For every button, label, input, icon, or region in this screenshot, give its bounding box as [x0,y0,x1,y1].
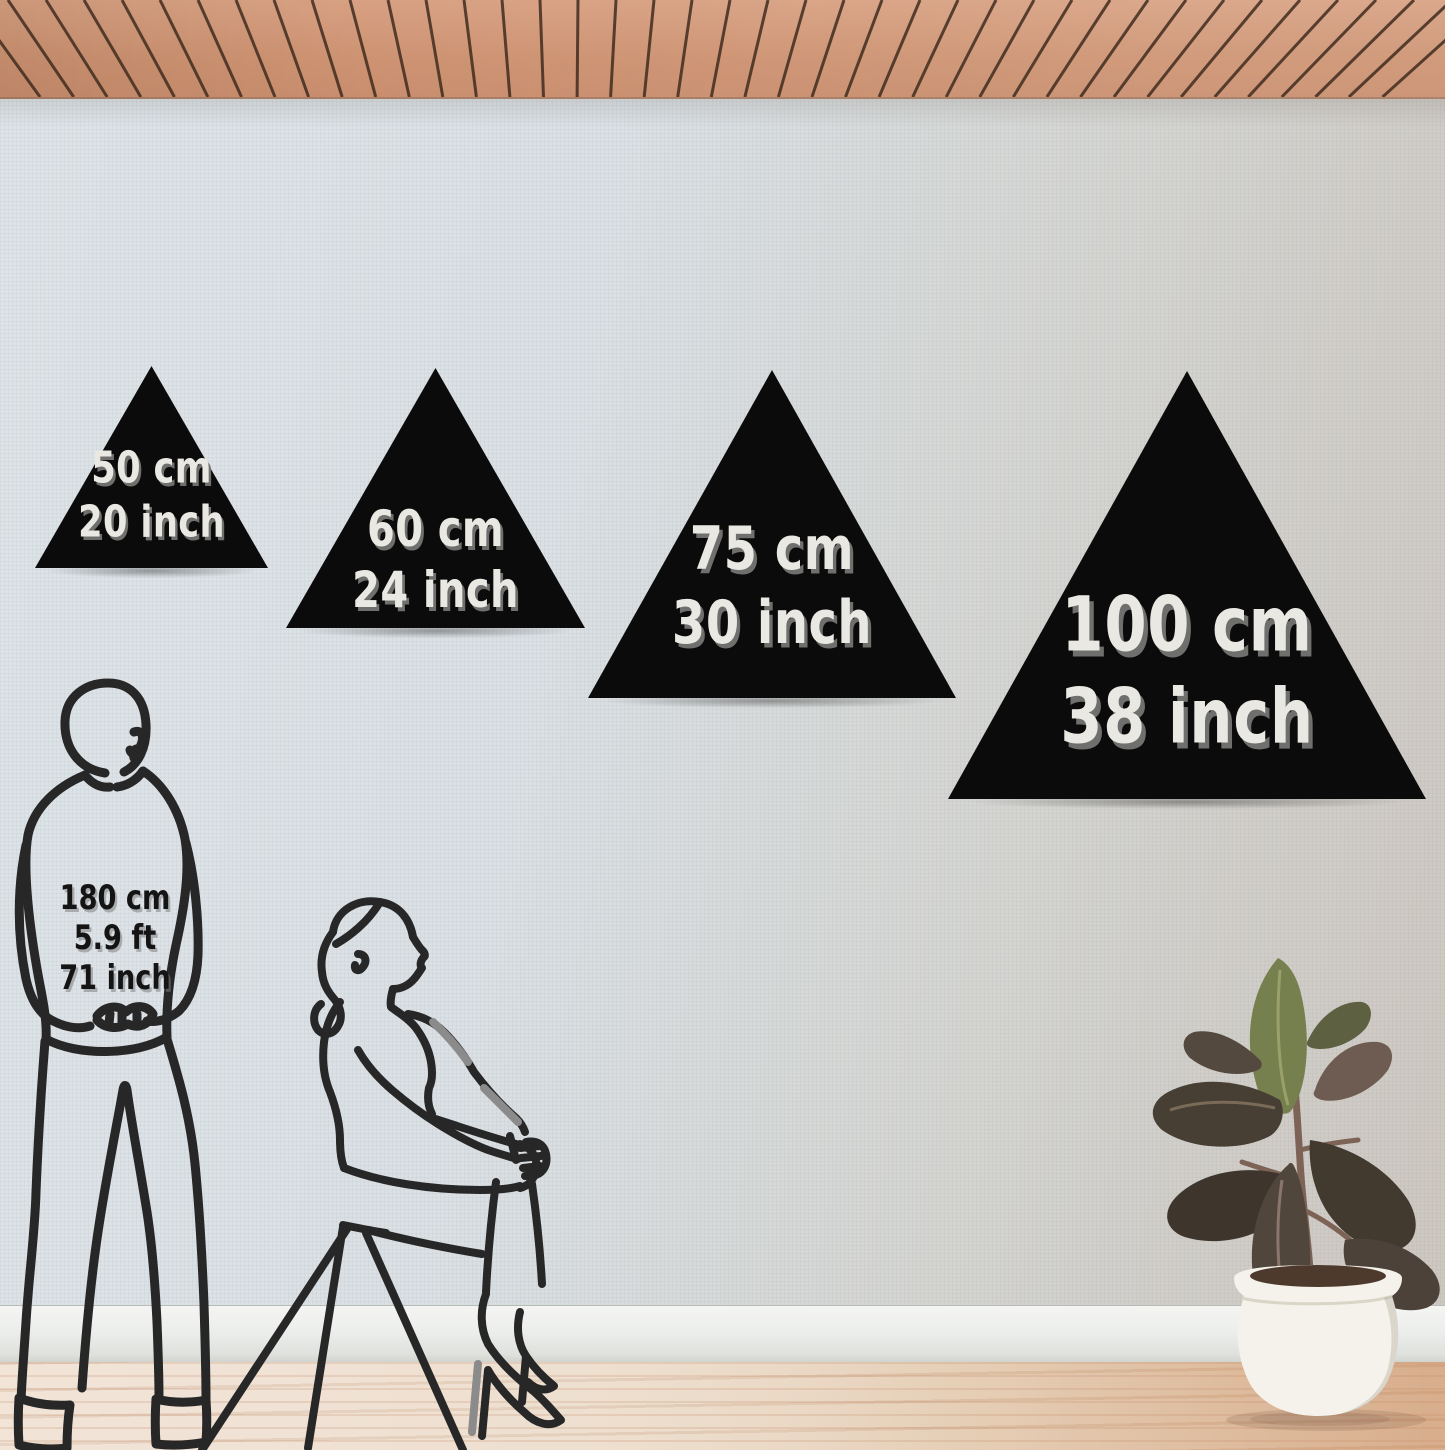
size-triangle-60cm: 60 cm 24 inch [286,368,585,628]
leaf-upper-right-small [1307,1002,1371,1049]
size-cm: 75 cm [625,513,919,586]
seated-woman-figure [180,892,590,1450]
size-triangle-50cm: 50 cm 20 inch [35,366,268,568]
wood-slat-ceiling [0,0,1445,99]
woman-heel-shading [472,1364,478,1432]
pot-soil [1250,1265,1386,1287]
woman-near-arm [358,1050,518,1159]
size-cm: 60 cm [316,499,555,560]
size-inch: 38 inch [996,671,1378,764]
man-left-cuff [18,1398,70,1449]
size-inch: 24 inch [316,560,555,621]
man-ear-mark [134,749,136,758]
size-triangle-75cm: 75 cm 30 inch [588,370,956,698]
man-left-leg [21,1041,45,1400]
size-label-50cm: 50 cm 20 inch [58,442,244,549]
size-inch: 20 inch [58,495,244,549]
man-hands-behind-back [97,1007,153,1028]
woman-face [393,937,425,989]
size-cm: 50 cm [58,442,244,496]
ceiling-slats [0,0,1445,97]
leaf-right-mid [1310,1140,1416,1251]
potted-plant [1130,940,1445,1440]
leaf-upper-right [1314,1042,1392,1101]
size-label-60cm: 60 cm 24 inch [316,499,555,621]
size-comparison-scene: 50 cm 20 inch 60 cm 24 inch 75 cm 30 inc… [0,0,1445,1450]
size-triangle-100cm: 100 cm 38 inch [948,371,1426,799]
woman-calf [532,1184,542,1284]
stool-legs [202,1227,463,1450]
woman-ear [355,954,366,970]
person-height-ft: 5.9 ft [47,918,183,958]
woman-back-shoe [518,1312,554,1402]
size-label-75cm: 75 cm 30 inch [625,513,919,659]
size-label-100cm: 100 cm 38 inch [996,578,1378,763]
size-cm: 100 cm [996,578,1378,671]
size-inch: 30 inch [625,586,919,659]
man-inner-legs [82,1086,159,1399]
person-height-inch: 71 inch [47,958,183,998]
woman-shin [486,1182,496,1292]
person-height-cm: 180 cm [47,878,183,918]
person-height-label: 180 cm 5.9 ft 71 inch [47,878,183,998]
